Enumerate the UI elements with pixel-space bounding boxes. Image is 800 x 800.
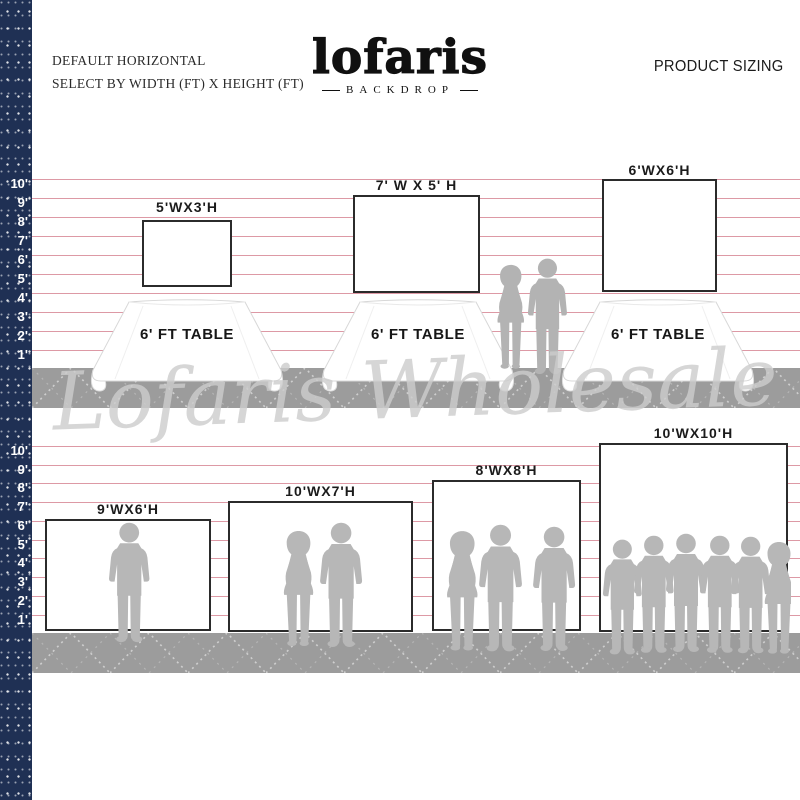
silhouette-couple-top — [490, 256, 570, 374]
table-label: 6' FT TABLE — [558, 326, 758, 343]
ruler-mark: 6' — [0, 518, 28, 534]
tablecloth-graphic — [318, 294, 518, 394]
brand-logo-text: lofaris — [300, 34, 500, 81]
backdrop-rect-6x6 — [602, 179, 717, 292]
ruler-mark: 10' — [0, 176, 28, 192]
backdrop-label-5x3: 5'WX3'H — [142, 199, 232, 216]
backdrop-label-8x8: 8'WX8'H — [432, 462, 581, 479]
backdrop-label-10x10: 10'WX10'H — [599, 425, 788, 442]
product-sizing-sheet: DEFAULT HORIZONTAL SELECT BY WIDTH (FT) … — [0, 0, 800, 800]
table-label: 6' FT TABLE — [87, 326, 287, 343]
silhouette-trio — [441, 518, 577, 652]
header-line-2: SELECT BY WIDTH (FT) X HEIGHT (FT) — [52, 73, 304, 96]
backdrop-label-9x6: 9'WX6'H — [45, 501, 211, 518]
navy-border-strip — [0, 0, 32, 800]
ruler-mark: 2' — [0, 593, 28, 609]
backdrop-rect-5x3 — [142, 220, 232, 287]
header-default-horizontal: DEFAULT HORIZONTAL SELECT BY WIDTH (FT) … — [52, 50, 304, 96]
ruler-mark: 8' — [0, 480, 28, 496]
table-6ft-2: 6' FT TABLE — [318, 294, 518, 394]
brand-sub-backdrop: BACKDROP — [346, 84, 454, 96]
dash-right — [460, 90, 478, 91]
tablecloth-graphic — [558, 294, 758, 394]
brand-subtitle-row: BACKDROP — [300, 84, 500, 96]
ruler-mark: 1' — [0, 347, 28, 363]
ruler-mark: 9' — [0, 462, 28, 478]
tablecloth-graphic — [87, 294, 287, 394]
ruler-mark: 8' — [0, 214, 28, 230]
silhouette-group-of-six — [599, 531, 791, 655]
ruler-mark: 10' — [0, 443, 28, 459]
silhouette-man — [106, 521, 152, 643]
backdrop-label-7x5: 7' W X 5' H — [353, 177, 480, 194]
brand-logo: lofaris BACKDROP — [300, 34, 500, 96]
backdrop-label-6x6: 6'WX6'H — [602, 162, 717, 179]
backdrop-label-10x7: 10'WX7'H — [228, 483, 413, 500]
ruler-mark: 1' — [0, 612, 28, 628]
backdrop-rect-7x5 — [353, 195, 480, 293]
product-sizing-title: PRODUCT SIZING — [654, 58, 784, 76]
table-label: 6' FT TABLE — [318, 326, 518, 343]
ruler-mark: 7' — [0, 499, 28, 515]
ruler-mark: 4' — [0, 290, 28, 306]
dash-left — [322, 90, 340, 91]
silhouette-couple — [278, 520, 366, 648]
ruler-mark: 4' — [0, 555, 28, 571]
table-6ft-1: 6' FT TABLE — [87, 294, 287, 394]
ruler-mark: 7' — [0, 233, 28, 249]
header-line-1: DEFAULT HORIZONTAL — [52, 50, 304, 73]
ruler-mark: 6' — [0, 252, 28, 268]
ruler-mark: 3' — [0, 574, 28, 590]
table-6ft-3: 6' FT TABLE — [558, 294, 758, 394]
ruler-mark: 5' — [0, 271, 28, 287]
ruler-mark: 3' — [0, 309, 28, 325]
ruler-mark: 2' — [0, 328, 28, 344]
ruler-mark: 5' — [0, 537, 28, 553]
ruler-mark: 9' — [0, 195, 28, 211]
